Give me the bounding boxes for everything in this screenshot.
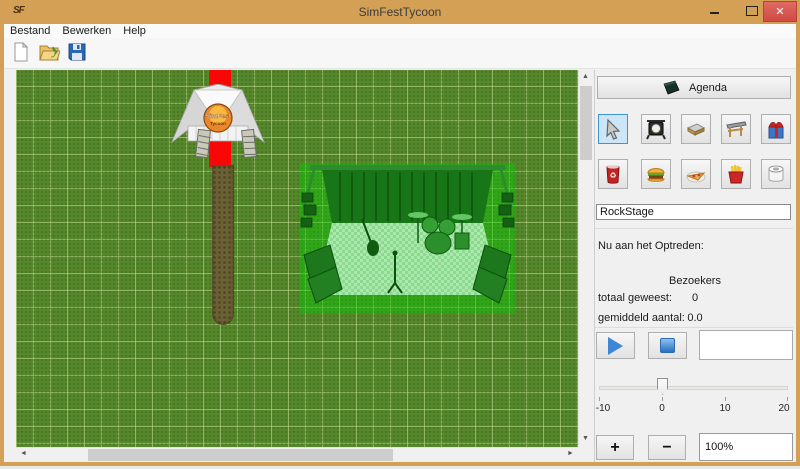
tick-label-minus10: -10: [596, 403, 610, 414]
fries-icon: [725, 163, 747, 185]
gift-box-icon: [765, 118, 787, 140]
side-panel: Agenda: [594, 70, 793, 462]
toolbar: [4, 38, 796, 69]
entrance-tool-button[interactable]: [721, 114, 751, 144]
menu-help[interactable]: Help: [117, 24, 152, 37]
agenda-book-icon: [661, 80, 681, 96]
rockstage-graphic: [300, 163, 515, 313]
scroll-right-icon[interactable]: ►: [564, 448, 577, 461]
close-button[interactable]: ✕: [763, 1, 797, 22]
menu-bestand[interactable]: Bestand: [4, 24, 56, 37]
vertical-scroll-thumb[interactable]: [580, 86, 592, 160]
play-icon: [608, 337, 623, 355]
agenda-button[interactable]: Agenda: [597, 76, 791, 99]
menu-bewerken[interactable]: Bewerken: [56, 24, 117, 37]
svg-text:SimFest: SimFest: [205, 113, 231, 120]
stop-icon: [660, 338, 675, 353]
play-button[interactable]: [596, 332, 635, 359]
tick: [599, 397, 600, 401]
separator: [595, 327, 793, 328]
speed-slider-track[interactable]: [599, 386, 788, 390]
tick: [725, 397, 726, 401]
horizontal-scroll-thumb[interactable]: [88, 449, 393, 461]
save-floppy-icon: [66, 41, 88, 63]
tick: [662, 397, 663, 401]
scroll-up-icon[interactable]: ▲: [579, 71, 592, 84]
average-visitors-label: gemiddeld aantal:: [598, 312, 685, 324]
menu-bar: BestandBewerkenHelp: [4, 24, 796, 38]
visitors-header: Bezoekers: [665, 275, 725, 287]
scroll-down-icon[interactable]: ▼: [579, 433, 592, 446]
simfest-logo-icon: SimFest Tycoon: [204, 104, 232, 132]
open-folder-icon: [38, 41, 60, 63]
select-tool-button[interactable]: [598, 114, 628, 144]
open-file-button[interactable]: [38, 41, 62, 65]
drink-can-icon: ♻: [602, 163, 624, 185]
tick: [787, 397, 788, 401]
zoom-in-button[interactable]: +: [596, 435, 634, 460]
new-file-button[interactable]: [10, 41, 34, 65]
map-canvas[interactable]: SimFest Tycoon: [16, 70, 578, 447]
pizza-item-button[interactable]: [681, 159, 711, 189]
toilet-item-button[interactable]: [761, 159, 791, 189]
tick-label-0: 0: [659, 403, 665, 414]
spotlight-icon: [645, 118, 667, 140]
app-window: SF SimFestTycoon ✕ BestandBewerkenHelp: [0, 0, 800, 466]
toilet-roll-icon: [765, 163, 787, 185]
client-area: BestandBewerkenHelp: [4, 24, 796, 462]
spotlight-tool-button[interactable]: [641, 114, 671, 144]
zoom-out-button[interactable]: −: [648, 435, 686, 460]
zoom-level-field[interactable]: [699, 433, 793, 461]
window-title: SimFestTycoon: [0, 5, 800, 19]
now-playing-label: Nu aan het Optreden:: [598, 240, 704, 252]
pizza-icon: [685, 163, 707, 185]
gift-tool-button[interactable]: [761, 114, 791, 144]
light-rig-left: [301, 193, 316, 227]
minimize-button[interactable]: [710, 12, 719, 14]
status-box: [699, 330, 793, 360]
light-rig-right: [499, 193, 514, 227]
dirt-path[interactable]: [212, 165, 234, 325]
burger-item-button[interactable]: [641, 159, 671, 189]
tick-label-10: 10: [719, 403, 730, 414]
save-file-button[interactable]: [66, 41, 90, 65]
burger-icon: [645, 163, 667, 185]
barrier-left: [196, 129, 211, 157]
separator: [595, 228, 793, 229]
vertical-scrollbar[interactable]: ▲ ▼: [578, 70, 592, 447]
stop-button[interactable]: [648, 332, 687, 359]
svg-text:Tycoon: Tycoon: [210, 121, 226, 126]
stage-platform-icon: [685, 118, 707, 140]
agenda-label: Agenda: [689, 82, 727, 94]
stage-tool-button[interactable]: [681, 114, 711, 144]
stage-preview[interactable]: [300, 163, 515, 313]
average-visitors-value: 0.0: [680, 312, 710, 324]
entrance-gate-icon: [725, 118, 747, 140]
drinks-item-button[interactable]: ♻: [598, 159, 628, 189]
new-document-icon: [10, 41, 32, 63]
stage-name-input[interactable]: [596, 204, 791, 220]
scroll-left-icon[interactable]: ◄: [17, 448, 30, 461]
cursor-icon: [602, 118, 624, 140]
svg-text:♻: ♻: [609, 171, 616, 180]
maximize-button[interactable]: [746, 6, 758, 16]
entrance-tent[interactable]: SimFest Tycoon: [170, 84, 266, 164]
fries-item-button[interactable]: [721, 159, 751, 189]
speed-slider-thumb[interactable]: [657, 378, 668, 395]
total-visitors-value: 0: [680, 292, 710, 304]
tick-label-20: 20: [778, 403, 789, 414]
horizontal-scrollbar[interactable]: ◄ ►: [16, 447, 578, 461]
title-bar[interactable]: SF SimFestTycoon ✕: [0, 0, 800, 24]
total-visitors-label: totaal geweest:: [598, 292, 672, 304]
